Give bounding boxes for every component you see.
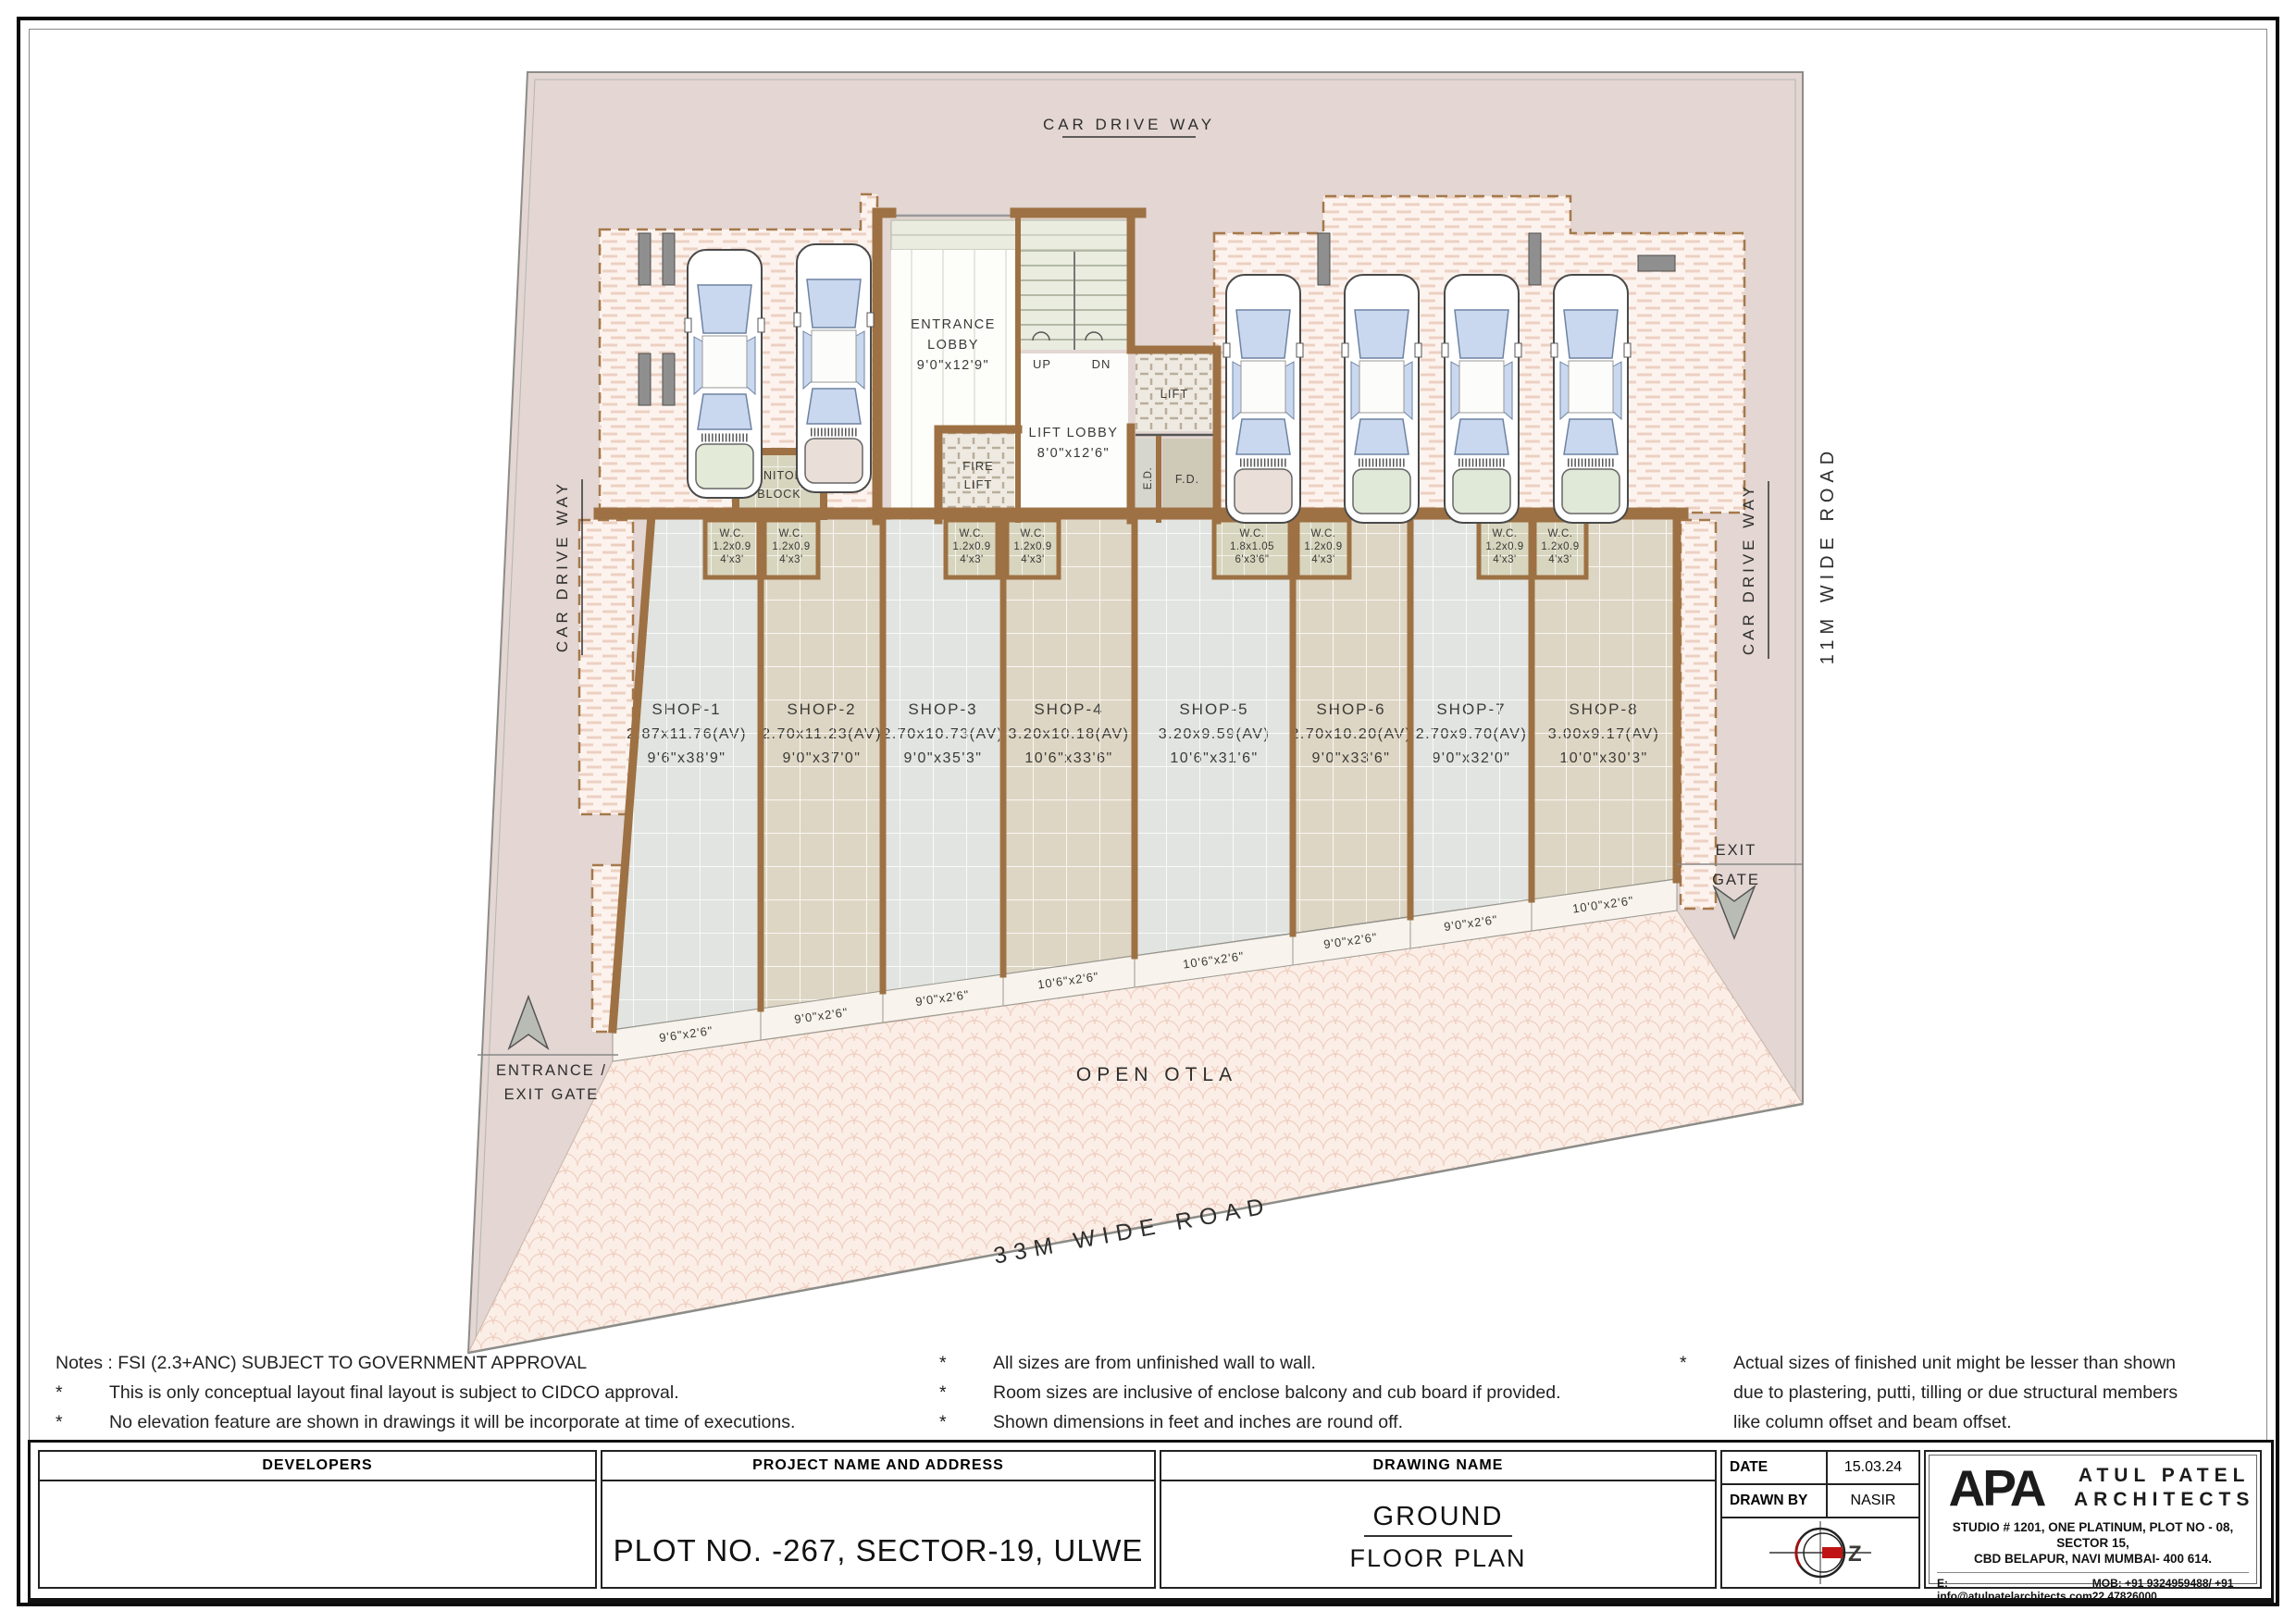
drawing-name-line1: GROUND [1364, 1502, 1513, 1537]
firm-mobile: MOB: +91 9324959488/ +91 22 47826000 [2092, 1577, 2249, 1603]
note-text: Actual sizes of finished unit might be l… [1733, 1349, 2176, 1377]
notes-col-1: Notes : FSI (2.3+ANC) SUBJECT TO GOVERNM… [56, 1349, 939, 1436]
wc2-f: 4'x3' [779, 554, 802, 565]
right-road-label: 11M WIDE ROAD [1818, 446, 1838, 665]
wc8-f: 4'x3' [1548, 554, 1571, 565]
shop-5-size-m: 3.20x9.59(AV) [1159, 726, 1271, 742]
note-bullet: * [939, 1408, 993, 1436]
note-text: Room sizes are inclusive of enclose balc… [993, 1379, 1561, 1406]
entrance-lobby-label-1: ENTRANCE [911, 317, 996, 332]
developers-header: DEVELOPERS [40, 1452, 595, 1481]
shop-3-name: SHOP-3 [908, 700, 977, 718]
shop-7-size-ft: 9'0"x32'0" [1433, 750, 1511, 766]
open-otla-label: OPEN OTLA [1076, 1064, 1237, 1085]
shop-5: SHOP-5 3.20x9.59(AV) 10'6"x31'6" [1135, 520, 1293, 956]
firm-email: E: info@atulpatelarchitects.com [1937, 1577, 2092, 1603]
wc4-m: 1.2x0.9 [1013, 541, 1051, 552]
developers-cell: DEVELOPERS [38, 1450, 597, 1589]
notes-section: Notes : FSI (2.3+ANC) SUBJECT TO GOVERNM… [56, 1349, 2249, 1436]
shop-6-size-ft: 9'0"x33'6" [1312, 750, 1391, 766]
note-bullet: * [56, 1408, 109, 1436]
wc3-f: 4'x3' [960, 554, 983, 565]
title-block: DEVELOPERS PROJECT NAME AND ADDRESS PLOT… [28, 1440, 2274, 1604]
dn-label: DN [1092, 357, 1111, 371]
wc1-t: W.C. [720, 528, 745, 539]
shop-1-size-ft: 9'6"x38'9" [648, 750, 726, 766]
note-bullet: * [1680, 1349, 1733, 1377]
wc5-m: 1.8x1.05 [1230, 541, 1274, 552]
shop-4: SHOP-4 3.20x10.18(AV) 10'6"x33'6" [1003, 520, 1135, 974]
right-inner-road-label: CAR DRIVE WAY [1740, 483, 1757, 655]
drawnby-value: NASIR [1828, 1485, 1918, 1517]
wc5-f: 6'x3'6" [1235, 554, 1270, 565]
wc6-f: 4'x3' [1311, 554, 1334, 565]
note-bullet: * [939, 1379, 993, 1406]
note-text: No elevation feature are shown in drawin… [109, 1408, 795, 1436]
car-1 [685, 250, 764, 498]
entrance-lobby-dim: 9'0"x12'9" [917, 358, 989, 373]
project-name: PLOT NO. -267, SECTOR-19, ULWE [602, 1533, 1154, 1568]
firm-address-line1: STUDIO # 1201, ONE PLATINUM, PLOT NO - 0… [1937, 1519, 2249, 1551]
date-label: DATE [1722, 1452, 1828, 1483]
shop-4-size-m: 3.20x10.18(AV) [1009, 726, 1130, 742]
shop-5-size-ft: 10'6"x31'6" [1170, 750, 1258, 766]
drawnby-label: DRAWN BY [1722, 1485, 1828, 1517]
fire-lift-label-1: FIRE [962, 459, 994, 473]
date-value: 15.03.24 [1828, 1452, 1918, 1483]
up-label: UP [1033, 357, 1051, 371]
firm-address-line2: CBD BELAPUR, NAVI MUMBAI- 400 614. [1937, 1551, 2249, 1567]
wc2-m: 1.2x0.9 [772, 541, 810, 552]
wc3-m: 1.2x0.9 [952, 541, 990, 552]
note-text: due to plastering, putti, tilling or due… [1733, 1379, 2178, 1406]
car-4 [1342, 275, 1421, 523]
car-3 [1223, 275, 1303, 523]
date-cell: DATE 15.03.24 DRAWN BY NASIR Z [1720, 1450, 1920, 1589]
left-road-label: CAR DRIVE WAY [553, 480, 571, 652]
drawing-sheet: SHOP-1 2.87x11.76(AV) 9'6"x38'9" SHOP-2 … [0, 0, 2296, 1623]
firm-logo: APA [1937, 1458, 2055, 1518]
wc6-m: 1.2x0.9 [1304, 541, 1342, 552]
shop-7-name: SHOP-7 [1436, 700, 1506, 718]
wc8-m: 1.2x0.9 [1541, 541, 1579, 552]
note-bullet: * [56, 1379, 109, 1406]
firm-cell: APA ATUL PATEL ARCHITECTS STUDIO # 1201,… [1924, 1450, 2262, 1589]
wc6-t: W.C. [1311, 528, 1336, 539]
lift-lobby-dim: 8'0"x12'6" [1037, 446, 1110, 461]
project-header: PROJECT NAME AND ADDRESS [602, 1452, 1154, 1481]
top-road-label: CAR DRIVE WAY [1043, 116, 1215, 133]
note-text: Shown dimensions in feet and inches are … [993, 1408, 1403, 1436]
car-2 [794, 244, 874, 492]
note-bullet: * [939, 1349, 993, 1377]
shop-8-name: SHOP-8 [1569, 700, 1638, 718]
drawing-header: DRAWING NAME [1161, 1452, 1715, 1481]
wc1-f: 4'x3' [720, 554, 743, 565]
wc3-t: W.C. [960, 528, 985, 539]
shop-8-size-ft: 10'0"x30'3" [1559, 750, 1647, 766]
note-text: All sizes are from unfinished wall to wa… [993, 1349, 1316, 1377]
ed-label: E.D. [1143, 467, 1154, 489]
shop-4-size-ft: 10'6"x33'6" [1024, 750, 1112, 766]
wc5-t: W.C. [1240, 528, 1265, 539]
note-text: like column offset and beam offset. [1733, 1408, 2012, 1436]
wc1-m: 1.2x0.9 [713, 541, 751, 552]
entrance-lobby-label-2: LOBBY [927, 338, 979, 353]
shop-2: SHOP-2 2.70x11.23(AV) 9'0"x37'0" [761, 520, 883, 1009]
shop-6-size-m: 2.70x10.20(AV) [1291, 726, 1412, 742]
wc7-m: 1.2x0.9 [1485, 541, 1523, 552]
firm-name-line1: ATUL PATEL [2074, 1465, 2254, 1487]
compass-letter: Z [1848, 1542, 1862, 1567]
exit-gate-label-1: EXIT [1716, 842, 1757, 859]
shop-8-size-m: 3.00x9.17(AV) [1548, 726, 1660, 742]
north-compass-icon: Z [1765, 1519, 1876, 1586]
entrance-gate-label-1: ENTRANCE / [496, 1062, 607, 1079]
lift-label: LIFT [1160, 387, 1189, 401]
notes-col-2: *All sizes are from unfinished wall to w… [939, 1349, 1680, 1436]
entrance-gate-label-2: EXIT GATE [504, 1086, 600, 1103]
shop-1-name: SHOP-1 [652, 700, 721, 718]
shop-2-name: SHOP-2 [787, 700, 856, 718]
drawing-cell: DRAWING NAME GROUND FLOOR PLAN [1160, 1450, 1717, 1589]
fd-label: F.D. [1175, 473, 1199, 486]
shop-2-size-m: 2.70x11.23(AV) [762, 726, 882, 742]
lift-lobby-label: LIFT LOBBY [1029, 426, 1119, 440]
shop-3: SHOP-3 2.70x10.73(AV) 9'0"x35'3" [883, 520, 1004, 991]
shop-7-size-m: 2.70x9.70(AV) [1416, 726, 1528, 742]
wc7-t: W.C. [1493, 528, 1518, 539]
wc4-f: 4'x3' [1021, 554, 1044, 565]
shop-3-size-ft: 9'0"x35'3" [904, 750, 983, 766]
shop-6-name: SHOP-6 [1316, 700, 1385, 718]
car-5 [1442, 275, 1521, 523]
drawing-name-line2: FLOOR PLAN [1161, 1544, 1715, 1573]
shop-2-size-ft: 9'0"x37'0" [783, 750, 862, 766]
wc2-t: W.C. [779, 528, 804, 539]
note-text: Notes : FSI (2.3+ANC) SUBJECT TO GOVERNM… [56, 1349, 587, 1377]
shop-6: SHOP-6 2.70x10.20(AV) 9'0"x33'6" [1291, 520, 1412, 934]
firm-name-line2: ARCHITECTS [2074, 1489, 2254, 1511]
exit-gate-label-2: GATE [1712, 872, 1760, 888]
shop-4-name: SHOP-4 [1034, 700, 1103, 718]
notes-col-3: *Actual sizes of finished unit might be … [1680, 1349, 2249, 1436]
wc7-f: 4'x3' [1493, 554, 1516, 565]
wc4-t: W.C. [1021, 528, 1046, 539]
car-6 [1551, 275, 1631, 523]
shop-1-size-m: 2.87x11.76(AV) [627, 726, 747, 742]
fire-lift [942, 433, 1014, 516]
sanitory-label-2: BLOCK [757, 488, 800, 501]
note-text: This is only conceptual layout final lay… [109, 1379, 679, 1406]
wc8-t: W.C. [1548, 528, 1573, 539]
project-cell: PROJECT NAME AND ADDRESS PLOT NO. -267, … [601, 1450, 1156, 1589]
shop-3-size-m: 2.70x10.73(AV) [883, 726, 1004, 742]
fire-lift-label-2: LIFT [964, 477, 993, 491]
shop-5-name: SHOP-5 [1179, 700, 1248, 718]
